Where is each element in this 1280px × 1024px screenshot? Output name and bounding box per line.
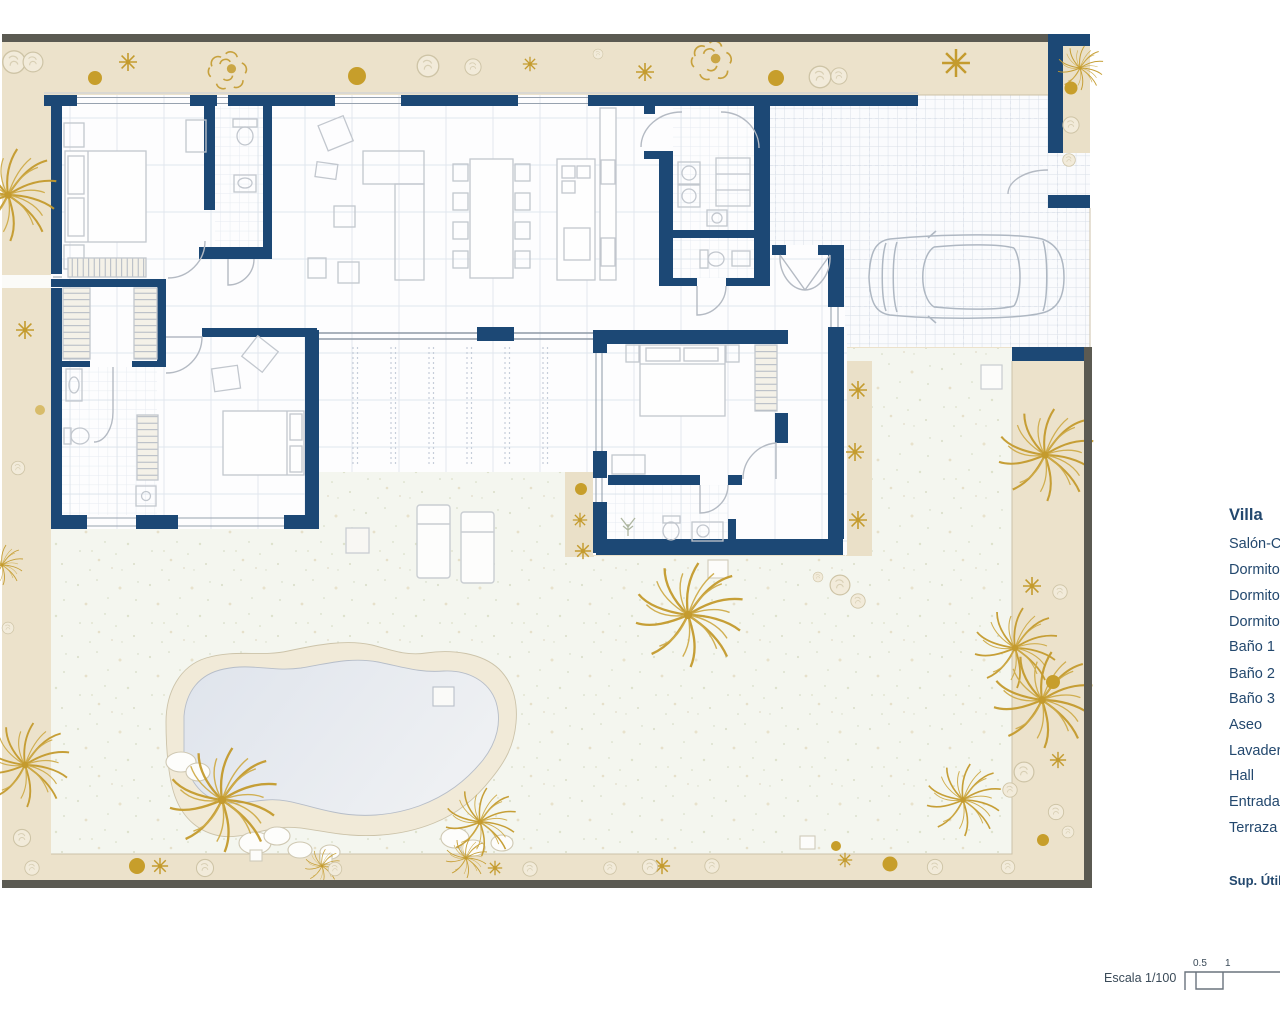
svg-text:Terraza: Terraza — [1229, 820, 1278, 836]
svg-text:Aseo: Aseo — [1229, 717, 1262, 733]
svg-text:Dormitorio 3: Dormitorio 3 — [1229, 614, 1280, 630]
svg-text:Baño 3: Baño 3 — [1229, 691, 1275, 707]
svg-text:Dormitorio 1: Dormitorio 1 — [1229, 562, 1280, 578]
svg-text:Entrada: Entrada — [1229, 794, 1280, 810]
svg-text:Sup. Útil 125.50 m²: Sup. Útil 125.50 m² — [1229, 873, 1280, 888]
svg-text:Baño 1: Baño 1 — [1229, 639, 1275, 655]
svg-text:Dormitorio 2: Dormitorio 2 — [1229, 588, 1280, 604]
svg-text:Lavadero: Lavadero — [1229, 743, 1280, 759]
svg-text:Salón-Cocina: Salón-Cocina — [1229, 536, 1280, 552]
svg-text:Escala 1/100: Escala 1/100 — [1104, 971, 1176, 985]
svg-text:Villa: Villa — [1229, 506, 1263, 524]
svg-text:1: 1 — [1225, 958, 1231, 969]
svg-text:0.5: 0.5 — [1193, 958, 1207, 969]
svg-text:Hall: Hall — [1229, 768, 1254, 784]
svg-text:Baño 2: Baño 2 — [1229, 666, 1275, 682]
